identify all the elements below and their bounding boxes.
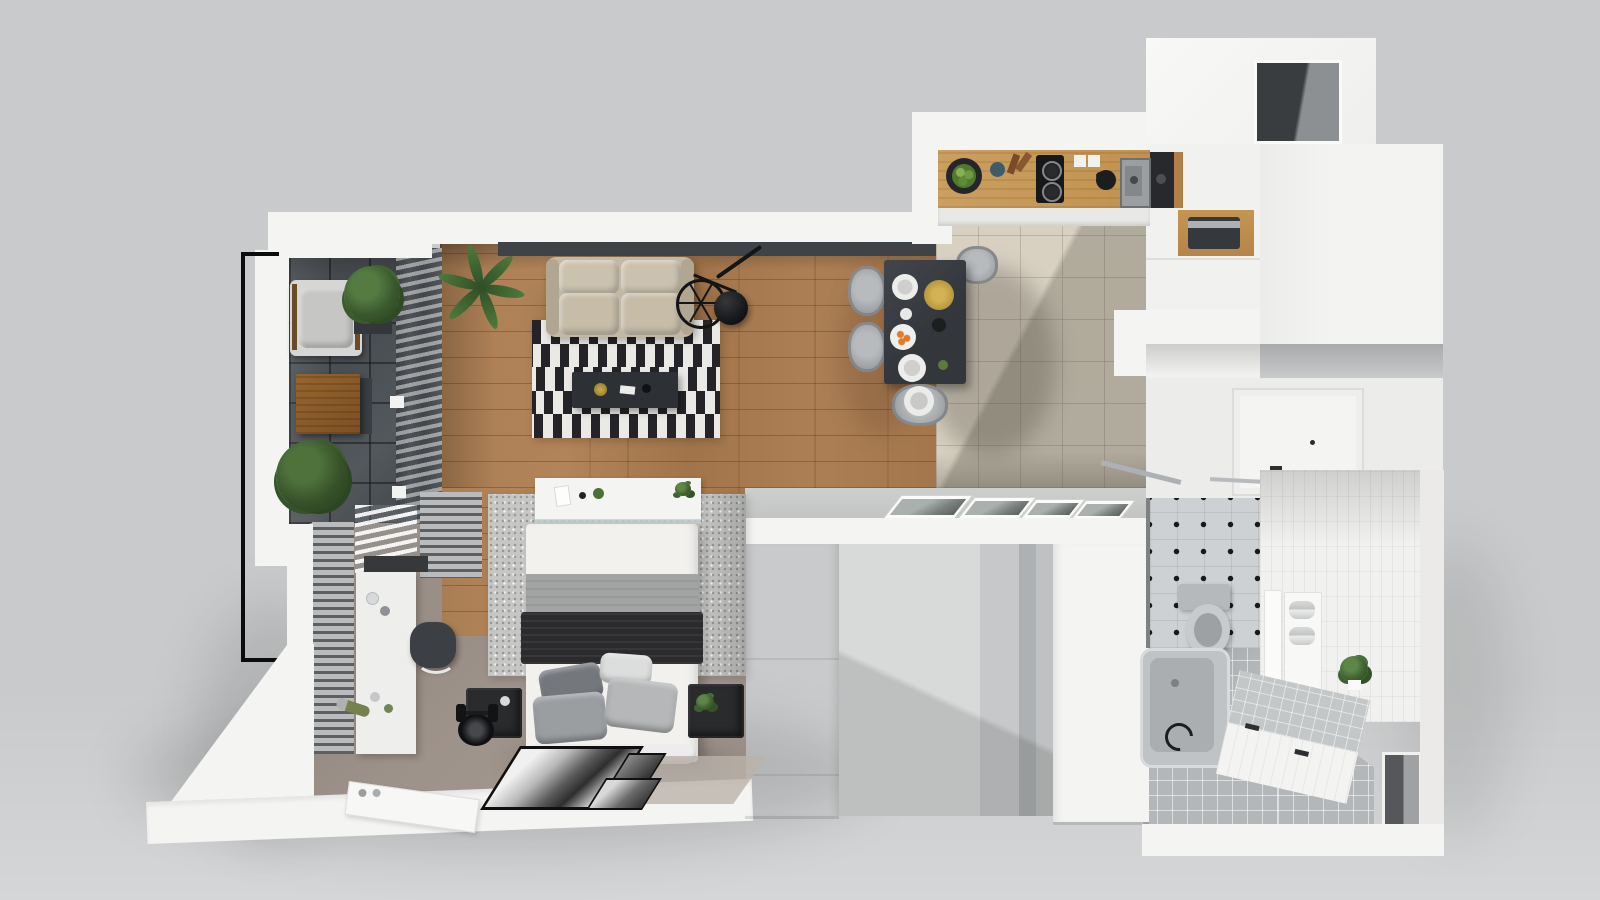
built-in-appliance [1148,152,1174,208]
kettle [1096,170,1116,190]
jar [990,162,1005,177]
bath-east-wall [1420,470,1444,856]
dining-table [884,260,966,384]
bathtub-drain-icon [1171,679,1179,687]
hall-inner-wall [839,544,1053,816]
shelf-plant-sprig [675,482,691,496]
bedroom-radiator-west [312,522,354,754]
sofa-seat-cushion [559,293,619,335]
desk-shelf [364,556,428,572]
balcony-bush [344,266,400,322]
kitchen-counter [938,150,1150,208]
kitchen-sink [1120,158,1151,208]
upper-cabinet-niche [1254,60,1342,144]
coffee-machine-niche [1178,210,1254,256]
bed-pillow [603,676,679,734]
chair-wood-rail [292,284,297,350]
living-top-wall-left [268,212,432,258]
palm-frond [446,284,485,323]
door-knob-icon [358,788,367,797]
sofa-arm-left [546,259,559,335]
sofa [546,257,694,337]
mirror-dot [1310,440,1315,445]
coffee-machine-chrome [1188,221,1240,228]
limes [952,164,976,188]
bathroom-plant [1340,656,1368,682]
bathroom-plant-pot [1348,680,1361,690]
balcony-window-wall [396,248,442,524]
shelf-plant [593,488,604,499]
kitchen-floor-bottom-shadow [936,452,1148,488]
coffee-machine [1188,217,1240,249]
fruit-plate [890,324,916,350]
balcony-large-plant [276,440,348,512]
bath-south-wall [1142,824,1444,856]
dumbbell [456,704,498,722]
sofa-back-cushion [559,260,619,294]
hall-volume-top [745,488,1149,518]
desk-cup [384,704,393,713]
headboard-shelf [535,478,701,520]
magazine [620,385,636,395]
herb-garnish [938,360,948,370]
dining-chair [848,322,886,372]
alarm-clock-icon [579,492,586,499]
towel-cabinet [1284,592,1322,690]
bedside-card [554,485,572,507]
wall-picture-frame [884,496,971,518]
fruit-bowl [946,158,982,194]
desk-bottle [366,592,379,605]
rolled-towel [1289,601,1315,619]
appliance-dial-icon [1156,174,1166,184]
office-chair [404,616,462,674]
balcony-wood-table [296,374,360,434]
white-plate [898,354,926,382]
door-knob-icon [372,788,381,797]
hall-left-pillar [745,544,839,816]
kitchen-top-wall [936,112,1152,152]
dumbbell-bar [464,711,490,715]
dining-chair [848,266,886,316]
rolled-towel [1289,627,1315,645]
toilet-bowl-inner [1194,613,1222,647]
tea-cup [900,308,912,320]
crate-cup [500,696,510,706]
dark-bowl [642,384,651,393]
desk-bottle [380,606,390,616]
bedside-crate [688,684,744,738]
balcony-railing [241,252,279,662]
office-chair-backrest [416,646,456,674]
hall-right-pillar [1053,544,1149,822]
cooktop [1036,155,1064,203]
hall-inner-shadow [839,544,1053,816]
white-plate [892,274,918,300]
crate-plant-sprig [696,694,714,710]
cabinet-right-wall [1260,144,1443,344]
window-handle-icon [392,486,406,498]
canister [1074,155,1086,167]
sofa-seat-cushion [621,293,681,335]
desk-cup [370,692,380,702]
bed-pillow [532,691,608,745]
coffee-table [572,372,678,408]
cabinet-overhang-shadow [1146,344,1443,378]
rug-row [532,344,720,368]
wall-picture-frame [1072,501,1134,519]
gold-bowl [594,383,607,396]
gold-tray [924,280,954,310]
canister [1088,155,1100,167]
dumbbell-plate [488,704,498,722]
white-plate [904,386,934,416]
window-handle-icon [390,396,404,408]
dark-bowl [932,318,946,332]
appliance-wood-edge [1174,152,1183,208]
bedroom-radiator-north [420,492,482,578]
palm-plant [438,240,524,334]
sofa-back-cushion [621,260,681,294]
burner-icon [1042,182,1062,202]
bathtub [1140,648,1230,768]
bed-gray-blanket [526,574,698,614]
floor-plan-render [0,0,1600,900]
kitchen-cabinet-face [938,208,1150,226]
living-window-blinds [396,248,442,524]
dumbbell-plate [456,704,466,722]
hall-volume-front [745,518,1149,544]
living-wall-ledge [498,242,936,256]
round-side-table [714,291,748,325]
burner-icon [1042,161,1062,181]
rug-row [532,414,720,438]
sink-faucet-icon [1130,176,1138,184]
rug-shadow-right [702,494,746,676]
